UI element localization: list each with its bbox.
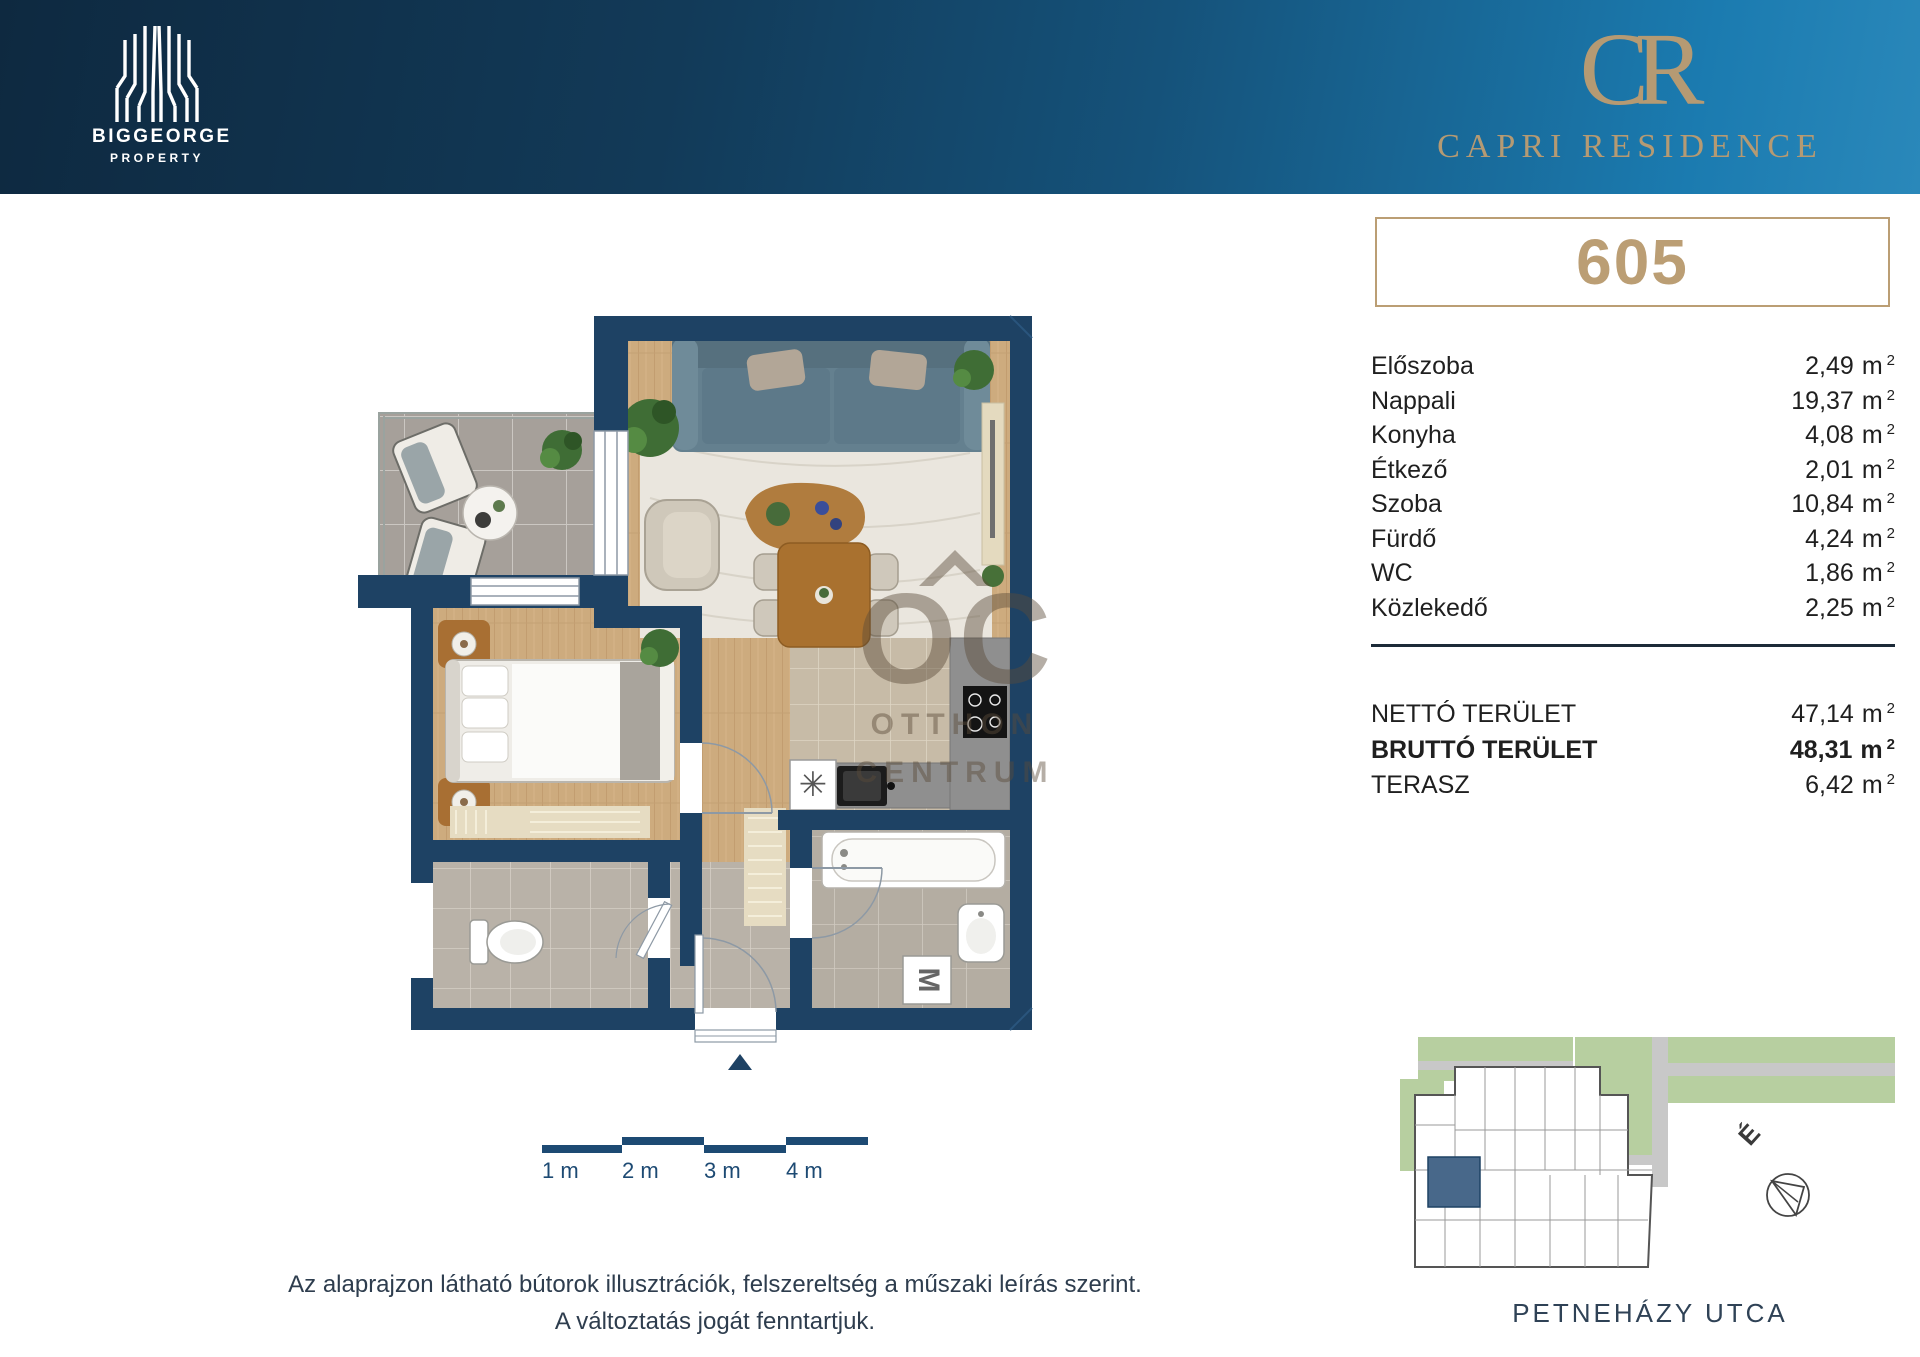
- room-label: Fürdő: [1371, 525, 1436, 554]
- wall-top: [594, 316, 1032, 341]
- bedroom-rug: [450, 806, 650, 838]
- scale-label: 2 m: [622, 1158, 659, 1184]
- room-value: 4,08m2: [1805, 421, 1895, 450]
- scale-bar: [542, 1137, 872, 1153]
- scale-label: 4 m: [786, 1158, 823, 1184]
- site-building: [1415, 1067, 1652, 1267]
- floorplan-sheet: BIGGEORGE PROPERTY CR CAPRI RESIDENCE 60…: [0, 0, 1920, 1357]
- biggeorge-building-icon: [105, 26, 209, 122]
- total-label: TERASZ: [1371, 771, 1470, 800]
- room-value: 2,49m2: [1805, 352, 1895, 381]
- room-row: Közlekedő2,25m2: [1371, 594, 1895, 629]
- table-divider: [1371, 644, 1895, 647]
- north-label: É: [1732, 1118, 1766, 1151]
- street-label: PETNEHÁZY UTCA: [1400, 1298, 1900, 1329]
- disclaimer-line2: A változtatás jogát fenntartjuk.: [240, 1303, 1190, 1340]
- room-row: Nappali19,37m2: [1371, 387, 1895, 422]
- total-label: BRUTTÓ TERÜLET: [1371, 736, 1597, 765]
- scale-label: 3 m: [704, 1158, 741, 1184]
- left-wall-opening: [411, 883, 433, 978]
- living-plant-icon: [621, 399, 679, 457]
- room-label: Közlekedő: [1371, 594, 1488, 623]
- room-value: 10,84m2: [1791, 490, 1895, 519]
- room-label: Nappali: [1371, 387, 1456, 416]
- scale-segment: [704, 1145, 786, 1153]
- room-label: Szoba: [1371, 490, 1442, 519]
- bed: [446, 660, 674, 782]
- room-row: WC1,86m2: [1371, 559, 1895, 594]
- brand-name: BIGGEORGE: [92, 126, 222, 148]
- total-value: 6,42m2: [1805, 771, 1895, 800]
- kitchen-sink: [837, 766, 895, 806]
- room-label: Előszoba: [1371, 352, 1474, 381]
- sofa: [672, 334, 990, 452]
- disclaimer-line1: Az alaprajzon látható bútorok illusztrác…: [240, 1266, 1190, 1303]
- terrace-table: [463, 486, 517, 540]
- brand-subtitle: PROPERTY: [92, 151, 222, 165]
- biggeorge-logo: BIGGEORGE PROPERTY: [92, 26, 222, 158]
- room-value: 4,24m2: [1805, 525, 1895, 554]
- totals-table: NETTÓ TERÜLET47,14m2 BRUTTÓ TERÜLET48,31…: [1371, 700, 1895, 807]
- entry-arrow: [728, 1054, 752, 1070]
- scale-label: 1 m: [542, 1158, 579, 1184]
- terrace-slider-window: [594, 431, 628, 575]
- room-row: Konyha4,08m2: [1371, 421, 1895, 456]
- bedroom-window: [471, 578, 579, 605]
- washing-machine-label: M: [912, 968, 945, 993]
- room-row: Étkező2,01m2: [1371, 456, 1895, 491]
- compass: É: [1732, 1118, 1809, 1216]
- room-value: 1,86m2: [1805, 559, 1895, 588]
- site-plan: É: [1400, 1035, 1900, 1285]
- appliance-symbol-box: ✳: [790, 760, 836, 810]
- room-row: Előszoba2,49m2: [1371, 352, 1895, 387]
- room-value: 2,01m2: [1805, 456, 1895, 485]
- armchair: [645, 500, 719, 590]
- toilet: [470, 920, 543, 964]
- scale-segment: [622, 1137, 704, 1145]
- wall-bedroom-bottom: [411, 840, 702, 862]
- unit-number: 605: [1576, 225, 1689, 299]
- floor-plan: ✳: [350, 308, 1040, 1083]
- room-table: Előszoba2,49m2 Nappali19,37m2 Konyha4,08…: [1371, 352, 1895, 628]
- washing-machine: M: [903, 956, 951, 1004]
- disclaimer: Az alaprajzon látható bútorok illusztrác…: [240, 1266, 1190, 1340]
- wall-right: [1010, 316, 1032, 1030]
- total-row-brutto: BRUTTÓ TERÜLET48,31m2: [1371, 736, 1895, 772]
- total-value: 47,14m2: [1791, 700, 1895, 729]
- total-row-terasz: TERASZ6,42m2: [1371, 771, 1895, 807]
- coffee-table: [745, 483, 865, 551]
- room-label: Étkező: [1371, 456, 1447, 485]
- room-value: 19,37m2: [1791, 387, 1895, 416]
- unit-number-box: 605: [1375, 217, 1890, 307]
- wall-top-left-block: [594, 316, 628, 431]
- site-highlighted-unit: [1428, 1157, 1480, 1207]
- washbasin: [958, 904, 1004, 962]
- residence-name: CAPRI RESIDENCE: [1395, 128, 1865, 166]
- room-row: Fürdő4,24m2: [1371, 525, 1895, 560]
- wall-bathroom-top: [778, 810, 1010, 830]
- room-value: 2,25m2: [1805, 594, 1895, 623]
- room-label: WC: [1371, 559, 1413, 588]
- tv-console: [982, 403, 1004, 587]
- hob: [963, 686, 1007, 738]
- cr-monogram: CR: [1555, 18, 1715, 122]
- scale-labels: 1 m 2 m 3 m 4 m: [542, 1158, 882, 1182]
- scale-segment: [786, 1137, 868, 1145]
- total-label: NETTÓ TERÜLET: [1371, 700, 1576, 729]
- appliance-symbol: ✳: [799, 765, 828, 805]
- bathtub: [822, 832, 1005, 888]
- room-label: Konyha: [1371, 421, 1456, 450]
- scale-segment: [542, 1145, 622, 1153]
- header-band: BIGGEORGE PROPERTY CR CAPRI RESIDENCE: [0, 0, 1920, 194]
- total-value: 48,31m2: [1790, 736, 1895, 765]
- room-row: Szoba10,84m2: [1371, 490, 1895, 525]
- total-row-netto: NETTÓ TERÜLET47,14m2: [1371, 700, 1895, 736]
